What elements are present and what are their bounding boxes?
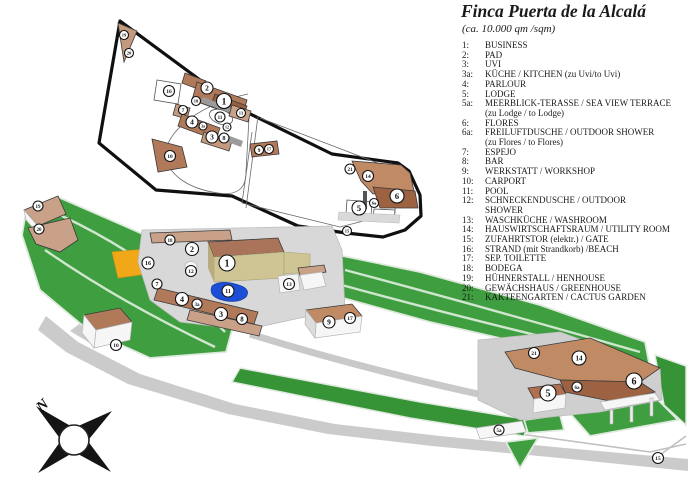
svg-text:15: 15 (345, 229, 350, 234)
plan-marker-6a: 6a (572, 382, 582, 392)
legend: 1:BUSINESS2:PAD3:UVI3a:KÜCHE / KITCHEN (… (462, 41, 698, 303)
legend-item-number: 6a: (462, 128, 485, 138)
plan-marker-18: 18 (192, 97, 201, 106)
legend-item-sublabel: (zu Flores / to Flores) (485, 138, 698, 148)
svg-text:21: 21 (348, 168, 354, 173)
svg-text:20: 20 (37, 228, 43, 233)
plan-marker-2: 2 (201, 82, 213, 94)
svg-text:7: 7 (182, 108, 185, 114)
plan-marker-7: 7 (179, 106, 188, 115)
svg-text:11: 11 (225, 289, 231, 295)
plan-marker-15: 15 (653, 453, 664, 464)
plan-marker-5a: 5a (494, 425, 504, 435)
svg-text:4: 4 (180, 295, 184, 304)
legend-item-label: KAKTEENGARTEN / CACTUS GARDEN (485, 293, 698, 303)
svg-text:5: 5 (357, 203, 362, 213)
svg-text:17: 17 (267, 147, 272, 152)
terrace-pillar-2 (630, 406, 633, 422)
plan-marker-20: 20 (125, 49, 134, 58)
page-subtitle: (ca. 10.000 qm /sqm) (462, 23, 555, 35)
svg-text:5a: 5a (497, 429, 503, 434)
compass-rose: N (33, 396, 112, 473)
svg-text:3: 3 (210, 133, 214, 142)
legend-item-label: BUSINESS (485, 41, 698, 51)
plan-marker-17: 17 (265, 145, 274, 154)
plan-marker-8: 8 (237, 314, 248, 325)
plan-marker-11: 11 (222, 285, 234, 297)
plan-marker-9: 9 (255, 146, 264, 155)
legend-item-number: 12: (462, 196, 485, 206)
plan-marker-1: 1 (217, 94, 232, 109)
svg-text:12: 12 (225, 124, 229, 129)
svg-text:3a: 3a (195, 303, 201, 308)
plan-marker-13: 13 (237, 109, 246, 118)
legend-item-label: PAD (485, 51, 698, 61)
terrace-pillar-1 (610, 410, 613, 424)
terrace-pillar-3 (650, 398, 653, 416)
plan-marker-14: 14 (572, 351, 586, 365)
svg-text:2: 2 (190, 245, 194, 254)
plan-marker-12: 12 (186, 266, 197, 277)
plan-marker-14: 14 (363, 171, 374, 182)
plan-marker-11: 11 (215, 112, 225, 122)
plan-marker-15: 15 (343, 227, 352, 236)
plan-marker-9: 9 (323, 316, 335, 328)
svg-text:13: 13 (239, 111, 244, 116)
svg-text:3: 3 (219, 310, 223, 319)
legend-item: 21:KAKTEENGARTEN / CACTUS GARDEN (462, 293, 698, 303)
legend-item-number: 21: (462, 293, 485, 303)
svg-text:18: 18 (168, 239, 174, 244)
svg-text:4: 4 (190, 118, 194, 127)
svg-text:16: 16 (145, 261, 151, 267)
plan-marker-6: 6 (390, 189, 404, 203)
plan-marker-3: 3 (215, 308, 228, 321)
plan-marker-16: 16 (164, 86, 175, 97)
plan-marker-19: 19 (120, 31, 129, 40)
svg-text:18: 18 (194, 99, 199, 104)
svg-text:11: 11 (218, 116, 223, 121)
svg-text:8: 8 (222, 135, 225, 142)
plan-marker-3a: 3a (192, 299, 202, 309)
svg-text:9: 9 (258, 148, 261, 154)
outline-plan: 19201621187131143a123891710211466a515 (99, 21, 421, 237)
svg-text:6: 6 (632, 377, 637, 388)
plan-marker-4: 4 (176, 293, 189, 306)
plan-marker-10: 10 (111, 340, 122, 351)
plan-marker-12: 12 (223, 123, 231, 131)
plan-marker-7: 7 (152, 279, 162, 289)
svg-text:15: 15 (655, 456, 661, 462)
svg-text:14: 14 (576, 354, 584, 362)
svg-text:10: 10 (167, 154, 173, 160)
svg-text:13: 13 (286, 282, 292, 288)
legend-item-label: ESPEJO (485, 148, 698, 158)
plan-marker-18: 18 (165, 235, 175, 245)
site-plan-page: 19201621187131143a123891710211466a515 (0, 0, 700, 500)
svg-text:6a: 6a (575, 386, 581, 391)
svg-text:14: 14 (365, 174, 371, 180)
svg-text:16: 16 (166, 89, 172, 95)
legend-item-label: CARPORT (485, 177, 698, 187)
plan-marker-20: 20 (34, 224, 44, 234)
svg-text:1: 1 (222, 97, 227, 107)
plan-marker-10: 10 (165, 151, 176, 162)
plan-marker-16: 16 (142, 257, 154, 269)
svg-text:9: 9 (327, 318, 331, 327)
plan-marker-5: 5 (352, 201, 366, 215)
plan-marker-21: 21 (345, 164, 355, 174)
plan-marker-3a: 3a (199, 122, 207, 130)
plan-marker-6: 6 (626, 373, 642, 389)
svg-text:19: 19 (122, 33, 127, 38)
legend-item-label: PARLOUR (485, 80, 698, 90)
plan-marker-1: 1 (219, 255, 235, 271)
svg-text:2: 2 (205, 84, 209, 93)
svg-text:7: 7 (155, 281, 158, 288)
plan-marker-8: 8 (219, 133, 229, 143)
plan-marker-17: 17 (345, 313, 356, 324)
svg-text:8: 8 (240, 316, 244, 323)
svg-text:5: 5 (546, 389, 551, 400)
svg-text:6a: 6a (372, 201, 377, 206)
plan-marker-3: 3 (206, 131, 218, 143)
svg-text:19: 19 (36, 205, 42, 210)
plan-marker-5: 5 (540, 385, 556, 401)
svg-text:3a: 3a (201, 123, 205, 128)
svg-text:20: 20 (127, 51, 132, 56)
compass-n-label: N (33, 396, 53, 417)
plan-marker-13: 13 (284, 279, 295, 290)
page-title: Finca Puerta de la Alcalá (461, 1, 646, 22)
compass-hub (59, 425, 89, 455)
svg-text:1: 1 (225, 259, 230, 270)
plan-marker-21: 21 (529, 348, 540, 359)
svg-text:6: 6 (395, 191, 400, 201)
svg-text:17: 17 (347, 316, 353, 322)
svg-text:21: 21 (531, 351, 537, 357)
svg-text:12: 12 (188, 269, 194, 275)
plan-marker-2: 2 (186, 243, 199, 256)
plan-marker-19: 19 (33, 201, 43, 211)
plan-marker-6a: 6a (370, 199, 379, 208)
svg-text:10: 10 (113, 343, 119, 349)
legend-item-number: 5a: (462, 99, 485, 109)
plan-marker-4: 4 (186, 116, 198, 128)
